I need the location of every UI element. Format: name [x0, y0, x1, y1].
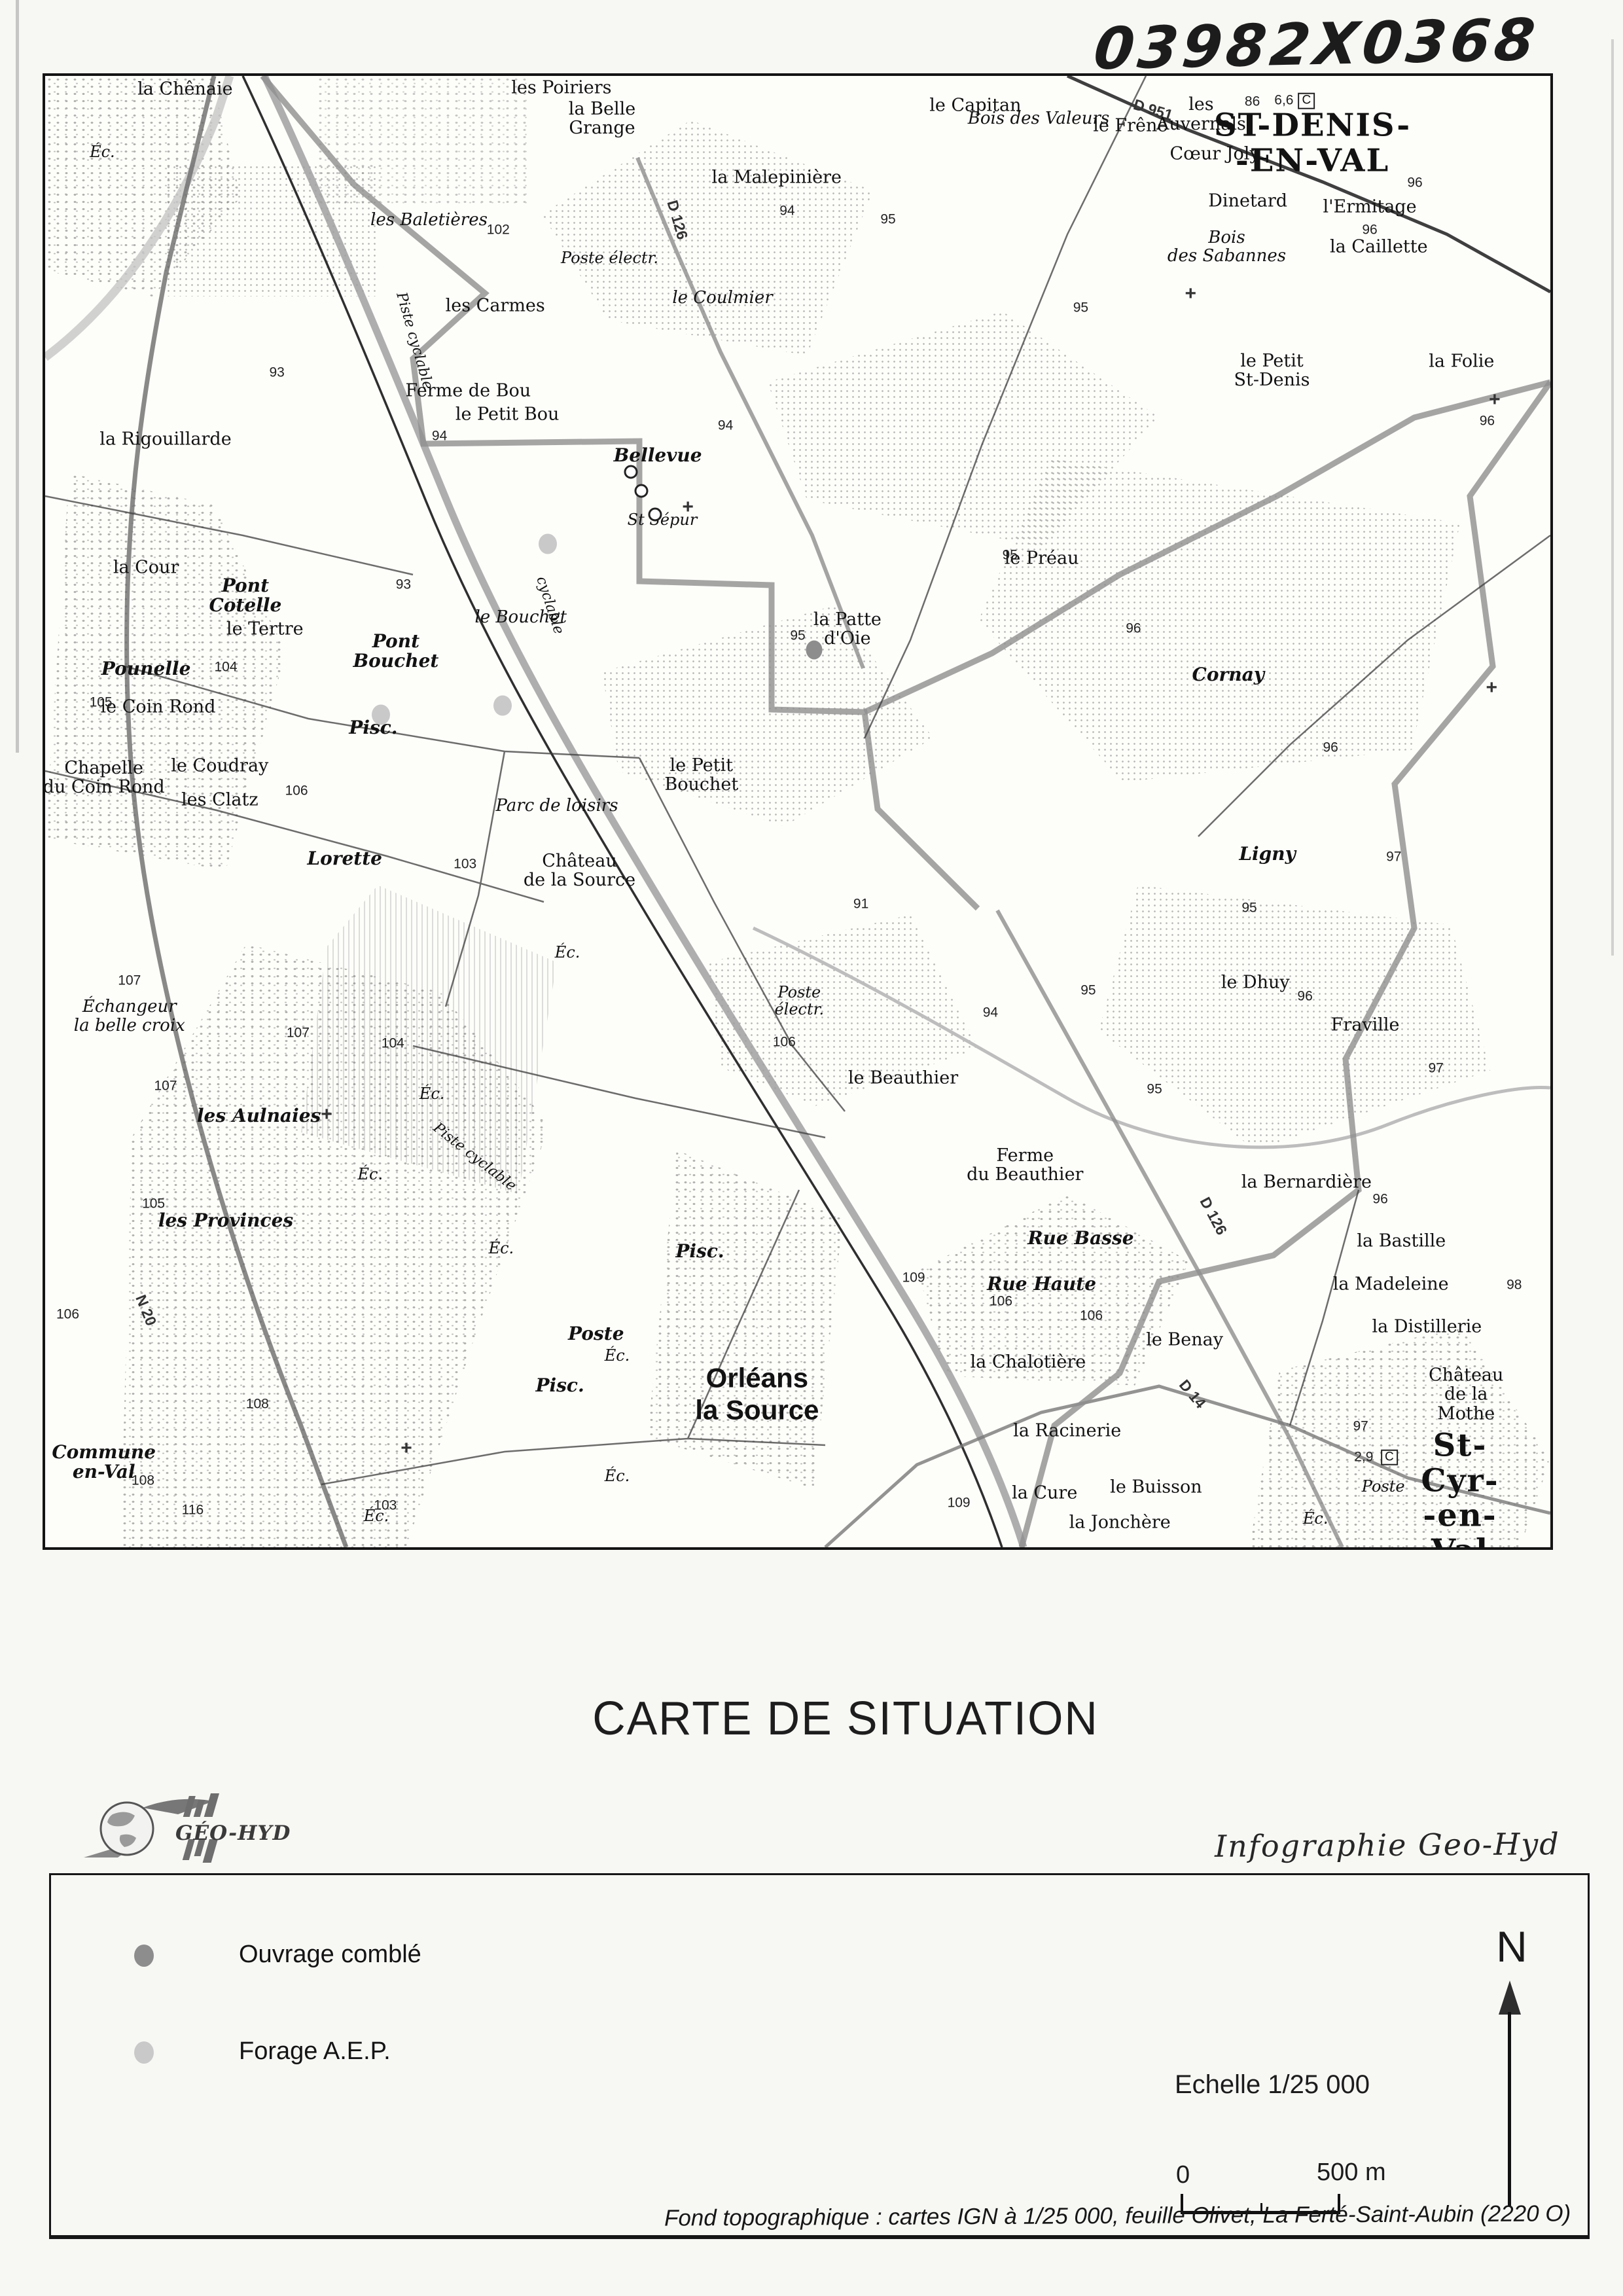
north-arrow-shaft	[1508, 2012, 1511, 2206]
situation-map: la Chênaieles Poiriersla Belle Grangele …	[43, 73, 1553, 1550]
scan-edge-left	[16, 0, 19, 753]
map-marker	[648, 507, 662, 521]
page-title: CARTE DE SITUATION	[592, 1692, 1098, 1746]
scale-zero: 0	[1176, 2161, 1190, 2189]
scale-end: 500 m	[1317, 2159, 1386, 2187]
handwritten-bss-code: 03982X0368	[1091, 6, 1542, 82]
north-arrow-icon	[1499, 1981, 1521, 2015]
credit-line: Infographie Geo-Hyd	[1215, 1826, 1560, 1864]
north-label: N	[1496, 1922, 1527, 1971]
map-source-note: Fond topographique : cartes IGN à 1/25 0…	[664, 2200, 1571, 2231]
map-marker	[634, 484, 648, 497]
map-marker	[493, 696, 512, 716]
map-marker	[372, 704, 390, 725]
legend-label-forage: Forage A.E.P.	[239, 2037, 391, 2066]
scan-edge-right	[1611, 39, 1614, 956]
scanned-page: 03982X0368	[0, 0, 1623, 2296]
map-markers-layer	[45, 76, 1550, 1547]
legend-dot-forage	[134, 2041, 154, 2064]
geo-hyd-wordmark: GÉO-HYD	[175, 1821, 291, 1845]
map-marker	[806, 640, 823, 659]
legend-label-ouvrage: Ouvrage comblé	[239, 1941, 421, 1969]
map-marker	[539, 533, 557, 554]
scale-label: Echelle 1/25 000	[1175, 2070, 1370, 2100]
legend-dot-ouvrage	[134, 1945, 154, 1967]
map-marker	[624, 465, 637, 478]
